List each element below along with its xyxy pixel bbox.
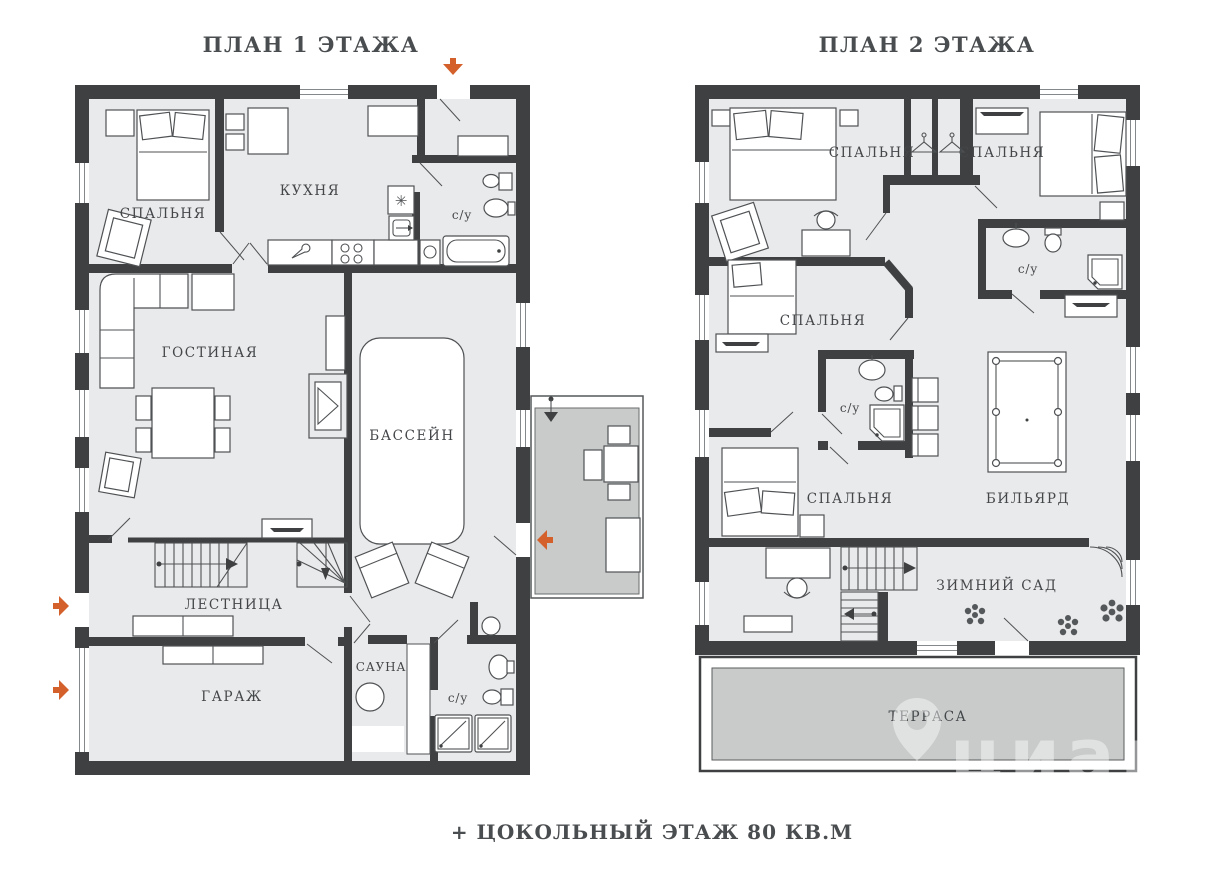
desk-icon [976,108,1028,134]
entrance-arrow-icon [53,680,69,700]
floor1-patio [531,396,643,598]
toilet-icon [875,386,902,401]
footer-caption: + ЦОКОЛЬНЫЙ ЭТАЖ 80 КВ.М [451,818,853,844]
shower-icon [435,715,472,752]
nightstand-icon [106,110,134,136]
nightstand-icon [800,515,824,537]
sauna-bench-icon [352,726,404,752]
bathtub-icon [443,236,509,266]
stove-icon: ✳ [388,186,414,214]
room-label-stairs: ЛЕСТНИЦА [185,597,284,613]
garage-shelf-icon [163,646,263,664]
bed-icon [730,108,836,200]
room-label-billiards: БИЛЬЯРД [986,491,1070,507]
niche-icon [326,316,345,370]
room-label-bedroom: СПАЛЬНЯ [120,206,207,222]
shelf-icon [458,136,508,156]
shelves-icon [912,378,938,456]
floor1-title: ПЛАН 1 ЭТАЖА [203,32,420,57]
floor2-title: ПЛАН 2 ЭТАЖА [819,32,1036,57]
bench-icon [133,616,233,636]
nightstand-icon [712,110,730,126]
bench-icon [744,616,792,632]
oven-icon [389,216,414,240]
toilet-icon [1045,228,1061,252]
bed-icon [722,448,798,536]
armchair-icon [192,274,234,310]
room-label-bathroom-top: с/у [452,208,472,222]
shower-icon [1088,255,1122,289]
sauna-stove-icon [356,683,384,711]
room-label-bedroom3: СПАЛЬНЯ [780,313,867,329]
nightstand-icon [1100,202,1124,220]
room-label-winter-garden: ЗИМНИЙ САД [936,577,1057,594]
room-label-bathroom-mid: с/у [840,401,860,415]
room-label-bedroom1: СПАЛЬНЯ [829,145,916,161]
billiard-table-icon [988,352,1066,472]
armchair-icon [99,452,141,498]
sink-icon [484,199,515,217]
room-label-sauna: САУНА [356,660,407,674]
fireplace-icon [309,374,347,438]
kitchen-cabinet-icon [368,106,418,136]
room-label-kitchen: КУХНЯ [280,183,341,199]
duct-icon [407,644,430,754]
floor2-plan: СПАЛЬНЯ СПАЛЬНЯ с/у СПАЛЬНЯ с/у СПАЛЬНЯ … [695,85,1140,771]
room-label-living: ГОСТИНАЯ [162,345,259,361]
sideboard-icon [262,519,312,538]
entrance-arrow-icon [443,58,463,75]
toilet-icon [483,689,513,705]
shower-icon [475,715,511,752]
tv-stand-icon [1065,295,1117,317]
shelf-icon [716,334,768,352]
patio-bench-icon [606,518,640,572]
nightstand-icon [840,110,858,126]
kitchen-counter-icon [268,240,418,265]
room-label-garage: ГАРАЖ [201,689,263,705]
room-label-pool: БАССЕЙН [369,427,454,444]
sink-icon [482,617,500,635]
bed-icon [1040,112,1126,196]
room-label-bathroom-top: с/у [1018,262,1038,276]
entrance-arrow-icon [53,596,69,616]
floorplan-page: ПЛАН 1 ЭТАЖА ПЛАН 2 ЭТАЖА [0,0,1206,879]
bed-icon [137,110,209,200]
room-label-bedroom2: СПАЛЬНЯ [959,145,1046,161]
room-label-bedroom4: СПАЛЬНЯ [807,491,894,507]
washer-icon [420,240,440,265]
floor1-plan: ✳ [53,58,643,775]
floorplan-canvas: ПЛАН 1 ЭТАЖА ПЛАН 2 ЭТАЖА [0,0,1206,879]
watermark-text: циан [950,713,1176,797]
svg-text:✳: ✳ [395,192,408,210]
room-label-bathroom-bottom: с/у [448,691,468,705]
